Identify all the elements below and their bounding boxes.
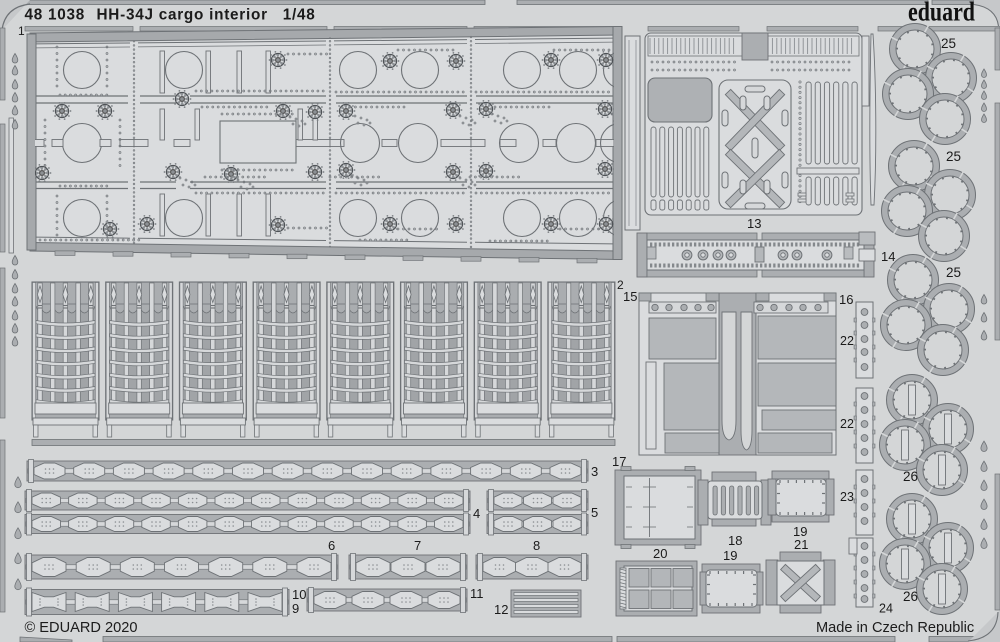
svg-text:5: 5: [591, 505, 598, 520]
svg-text:20: 20: [653, 546, 667, 561]
svg-text:1/48: 1/48: [283, 7, 316, 24]
svg-text:15: 15: [623, 289, 637, 304]
svg-text:13: 13: [747, 216, 761, 231]
svg-text:6: 6: [328, 538, 335, 553]
svg-text:26: 26: [903, 589, 918, 604]
svg-text:26: 26: [903, 469, 918, 484]
svg-text:HH-34J cargo interior: HH-34J cargo interior: [97, 7, 268, 24]
svg-text:12: 12: [494, 602, 508, 617]
svg-text:17: 17: [612, 454, 626, 469]
svg-text:eduard: eduard: [908, 0, 975, 26]
svg-text:7: 7: [414, 538, 421, 553]
svg-text:1: 1: [18, 24, 25, 38]
svg-text:19: 19: [723, 548, 737, 563]
svg-text:25: 25: [946, 149, 961, 164]
svg-text:© EDUARD 2020: © EDUARD 2020: [25, 620, 138, 636]
svg-text:3: 3: [591, 464, 598, 479]
svg-text:4: 4: [473, 506, 480, 521]
svg-text:21: 21: [794, 537, 808, 552]
svg-text:25: 25: [946, 265, 961, 280]
svg-text:22: 22: [840, 417, 854, 431]
svg-text:8: 8: [533, 538, 540, 553]
svg-text:23: 23: [840, 490, 854, 504]
svg-text:16: 16: [839, 292, 853, 307]
svg-text:48 1038: 48 1038: [25, 7, 86, 24]
svg-text:11: 11: [470, 586, 484, 601]
svg-text:9: 9: [292, 601, 299, 616]
svg-text:24: 24: [879, 602, 893, 616]
svg-text:18: 18: [728, 533, 742, 548]
svg-text:25: 25: [941, 36, 956, 51]
svg-text:Made in Czech Republic: Made in Czech Republic: [816, 620, 974, 636]
svg-text:10: 10: [292, 587, 306, 602]
svg-text:22: 22: [840, 334, 854, 348]
svg-text:14: 14: [881, 249, 895, 264]
